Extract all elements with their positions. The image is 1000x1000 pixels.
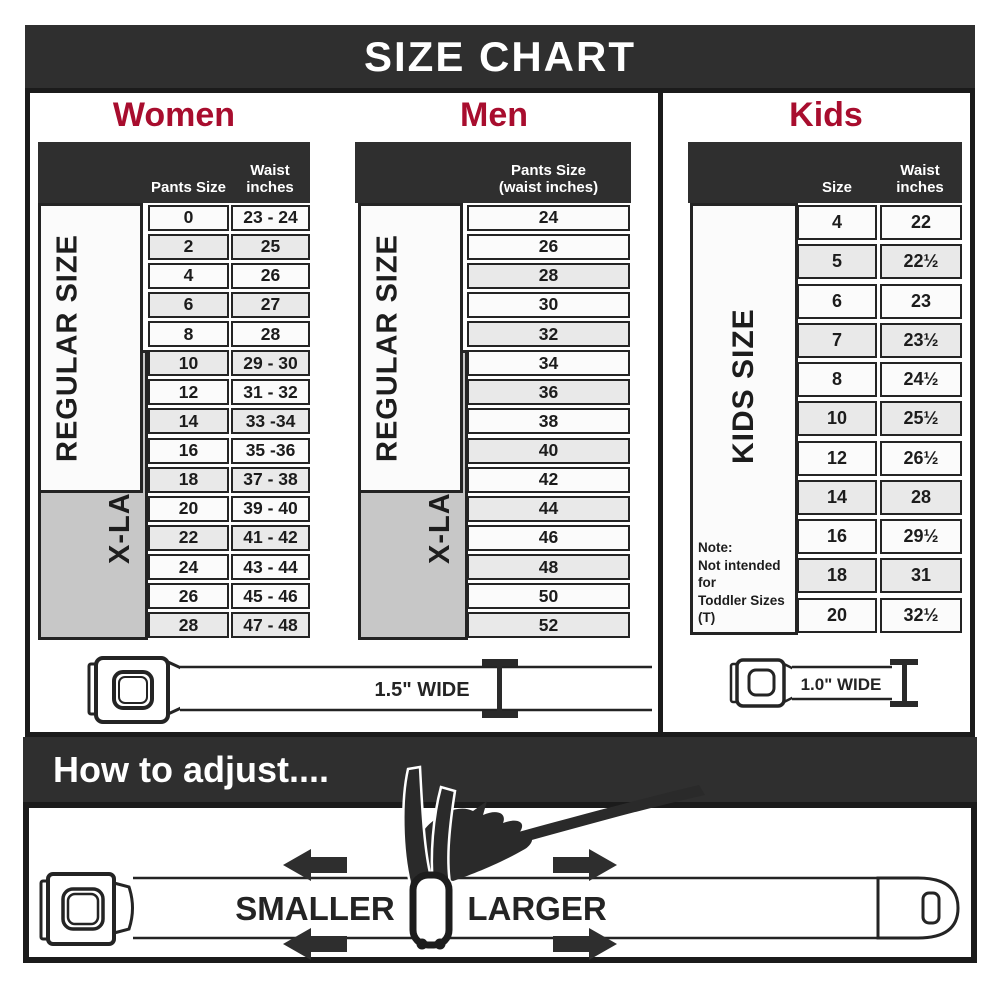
women-regular-box: REGULAR SIZE [38,203,143,493]
smaller-label: SMALLER [235,890,395,927]
women-waist-cell: 33 -34 [231,408,310,434]
women-waist-cell: 41 - 42 [231,525,310,551]
women-size-cell: 12 [148,379,229,405]
men-regular-box: REGULAR SIZE [358,203,463,493]
women-waist-cell: 45 - 46 [231,583,310,609]
belt-end-slot [923,893,939,923]
kids-size-cell: 16 [797,519,877,554]
women-xlarge-extension [38,492,99,640]
women-waist-cell: 31 - 32 [231,379,310,405]
women-size-cell: 0 [148,205,229,231]
kids-size-cell: 7 [797,323,877,358]
hand-index-finger [403,767,431,883]
women-size-cell: 18 [148,467,229,493]
kids-size-cell: 20 [797,598,877,633]
kids-waist-cell: 23 [880,284,962,319]
men-col-pants-size: Pants Size (waist inches) [467,142,630,203]
men-size-cell: 30 [467,292,630,318]
men-col-header-line1: Pants Size [511,162,586,179]
women-waist-cell: 39 - 40 [231,496,310,522]
belt-adjust-slider [413,875,449,950]
kids-waist-cell: 26½ [880,441,962,476]
kids-col-size: Size [797,142,877,203]
kids-size-box: KIDS SIZE Note: Not intended for Toddler… [690,203,798,635]
kids-note: Note: Not intended for Toddler Sizes (T) [698,539,795,627]
women-size-cell: 10 [148,350,229,376]
women-waist-cell: 28 [231,321,310,347]
kids-size-cell: 5 [797,244,877,279]
kids-waist-cell: 29½ [880,519,962,554]
kids-note-line1: Note: [698,539,795,557]
women-waist-cell: 26 [231,263,310,289]
men-size-cell: 46 [467,525,630,551]
adjust-buckle-flap [114,883,133,933]
women-size-cell: 14 [148,408,229,434]
kids-note-line3: Toddler Sizes (T) [698,592,795,627]
adult-buckle-button-inner [119,677,147,703]
kids-note-line2: Not intended for [698,557,795,592]
men-size-cell: 40 [467,438,630,464]
kids-waist-cell: 22½ [880,244,962,279]
kids-waist-cell: 23½ [880,323,962,358]
kids-size-label: KIDS SIZE [693,206,795,566]
men-size-cell: 26 [467,234,630,260]
men-size-cell: 44 [467,496,630,522]
men-regular-label: REGULAR SIZE [361,206,415,490]
adult-belt-width-label: 1.5" WIDE [374,679,469,701]
kids-size-cell: 8 [797,362,877,397]
kids-waist-cell: 28 [880,480,962,515]
kids-size-cell: 10 [797,401,877,436]
kids-col-waist-inches: Waist inches [878,142,962,203]
women-waist-cell: 23 - 24 [231,205,310,231]
women-regular-label: REGULAR SIZE [41,206,95,490]
arrow-left-top-icon [283,849,347,881]
adult-belt-illustration: 1.5" WIDE [30,648,660,733]
women-size-cell: 4 [148,263,229,289]
kids-waist-cell: 31 [880,558,962,593]
men-xlarge-extension [358,492,419,640]
men-size-cell: 34 [467,350,630,376]
women-waist-cell: 37 - 38 [231,467,310,493]
women-waist-cell: 25 [231,234,310,260]
kids-width-marker-icon [890,659,918,707]
men-size-cell: 38 [467,408,630,434]
men-size-cell: 32 [467,321,630,347]
women-size-cell: 20 [148,496,229,522]
adjust-illustration: SMALLER LARGER [25,755,975,967]
women-waist-cell: 35 -36 [231,438,310,464]
kids-waist-cell: 24½ [880,362,962,397]
women-waist-cell: 27 [231,292,310,318]
women-size-cell: 2 [148,234,229,260]
kids-size-cell: 6 [797,284,877,319]
women-col-pants-size: Pants Size [146,142,231,203]
women-waist-cell: 43 - 44 [231,554,310,580]
kids-buckle-button [749,670,774,695]
kids-belt-illustration: 1.0" WIDE [710,650,970,720]
slider-foot-left [417,939,428,950]
men-size-cell: 36 [467,379,630,405]
slider-foot-right [435,939,446,950]
kids-belt-width-label: 1.0" WIDE [801,675,882,694]
larger-label: LARGER [467,890,607,927]
women-waist-cell: 47 - 48 [231,612,310,638]
women-size-cell: 22 [148,525,229,551]
men-heading: Men [358,96,630,135]
arrow-right-top-icon [553,849,617,881]
section-divider [658,88,663,737]
kids-size-cell: 12 [797,441,877,476]
women-size-cell: 6 [148,292,229,318]
belt-end-tongue [878,878,958,938]
adjust-buckle-button-inner [68,894,98,924]
women-heading: Women [39,96,309,135]
men-size-cell: 28 [467,263,630,289]
women-size-cell: 28 [148,612,229,638]
page-title-banner: SIZE CHART [25,25,975,88]
page-title: SIZE CHART [364,33,636,81]
men-col-header-line2: (waist inches) [499,179,598,196]
kids-size-cell: 18 [797,558,877,593]
kids-size-cell: 4 [797,205,877,240]
kids-heading: Kids [690,96,962,135]
women-col-waist-inches: Waist inches [228,142,312,203]
men-size-cell: 24 [467,205,630,231]
kids-waist-cell: 22 [880,205,962,240]
men-size-cell: 50 [467,583,630,609]
kids-waist-cell: 25½ [880,401,962,436]
women-size-cell: 24 [148,554,229,580]
men-size-cell: 48 [467,554,630,580]
kids-waist-cell: 32½ [880,598,962,633]
men-size-cell: 52 [467,612,630,638]
size-chart-page: SIZE CHART Women Men Kids Pants Size Wai… [0,0,1000,1000]
women-size-cell: 26 [148,583,229,609]
kids-size-cell: 14 [797,480,877,515]
women-size-cell: 16 [148,438,229,464]
women-size-cell: 8 [148,321,229,347]
men-size-cell: 42 [467,467,630,493]
women-waist-cell: 29 - 30 [231,350,310,376]
